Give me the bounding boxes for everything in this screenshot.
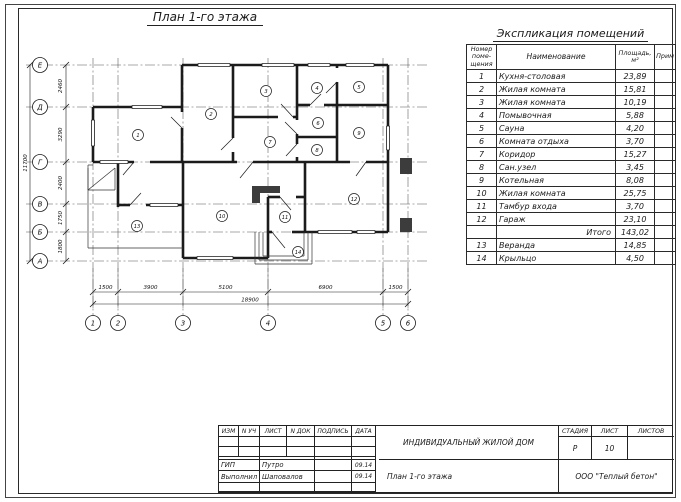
cell-room-number: 1: [467, 70, 497, 83]
cell-room-number: 8: [467, 161, 497, 174]
cell-note: [655, 148, 676, 161]
header-name: Наименование: [497, 45, 616, 70]
sheet-name: План 1-го этажа: [379, 460, 558, 492]
cell-room-number: 14: [467, 252, 497, 265]
revision-empty-cell: [219, 483, 260, 492]
svg-text:А: А: [37, 257, 43, 265]
svg-text:10: 10: [219, 214, 226, 220]
svg-text:Д: Д: [36, 103, 43, 111]
company-name: ООО "Теплый бетон": [559, 460, 674, 492]
revision-empty-cell: [260, 447, 287, 457]
cell-room-number: 3: [467, 96, 497, 109]
cell-room-area: 3,70: [616, 135, 655, 148]
cell-room-area: 4,20: [616, 122, 655, 135]
sign-name: Шаповалов: [260, 471, 315, 483]
svg-text:12: 12: [351, 197, 358, 203]
cell-room-area: 10,19: [616, 96, 655, 109]
stage-label: СТАДИЯ: [559, 426, 592, 437]
sign-date: 09.14: [352, 471, 376, 483]
svg-text:6900: 6900: [319, 285, 333, 291]
cell-room-name: Сан.узел: [497, 161, 616, 174]
cell-room-number: [467, 226, 497, 239]
header-note: Прим: [655, 45, 676, 70]
cell-note: [655, 109, 676, 122]
svg-text:6: 6: [406, 319, 411, 327]
cell-room-area: 25,75: [616, 187, 655, 200]
svg-text:3900: 3900: [144, 285, 158, 291]
svg-text:1750: 1750: [58, 211, 64, 225]
svg-text:В: В: [38, 200, 43, 208]
explication: Экспликация помещений Номер поме- щения …: [466, 22, 675, 265]
list-label: ЛИСТ: [592, 426, 628, 437]
cell-room-number: 9: [467, 174, 497, 187]
revision-empty-cell: [287, 437, 315, 447]
cell-room-name: Помывочная: [497, 109, 616, 122]
revision-empty-cell: [352, 447, 376, 457]
title-block-middle: ИНДИВИДУАЛЬНЫЙ ЖИЛОЙ ДОМ План 1-го этажа: [379, 426, 559, 492]
svg-text:11700: 11700: [23, 154, 29, 172]
revision-header: N ДОК: [287, 426, 315, 437]
cell-room-area: 8,08: [616, 174, 655, 187]
revision-empty-cell: [260, 483, 315, 492]
svg-text:4: 4: [266, 319, 270, 327]
explication-row: 13Веранда14,85: [467, 239, 676, 252]
cell-room-name: Тамбур входа: [497, 200, 616, 213]
cell-room-area: 143,02: [616, 226, 655, 239]
sign-role: ГИП: [219, 460, 260, 471]
explication-row: 6Комната отдыха3,70: [467, 135, 676, 148]
cell-note: [655, 213, 676, 226]
cell-room-number: 11: [467, 200, 497, 213]
svg-text:13: 13: [134, 224, 141, 230]
svg-text:1: 1: [136, 133, 139, 139]
svg-text:1500: 1500: [99, 285, 113, 291]
explication-row: 11Тамбур входа3,70: [467, 200, 676, 213]
cell-room-area: 4,50: [616, 252, 655, 265]
svg-text:9: 9: [357, 131, 360, 137]
cell-room-name: Котельная: [497, 174, 616, 187]
cell-room-number: 10: [467, 187, 497, 200]
svg-text:14: 14: [295, 250, 302, 256]
svg-text:3: 3: [181, 319, 185, 327]
explication-row: 5Сауна4,20: [467, 122, 676, 135]
explication-total-row: Итого143,02: [467, 226, 676, 239]
revision-header: ПОДПИСЬ: [315, 426, 352, 437]
cell-note: [655, 83, 676, 96]
revision-empty-cell: [219, 437, 239, 447]
drawing-sheet: План 1-го этажа ЕДГВБА123456246032902400…: [0, 0, 681, 502]
cell-room-number: 4: [467, 109, 497, 122]
sign-signature: [315, 460, 352, 471]
cell-room-name: Комната отдыха: [497, 135, 616, 148]
cell-note: [655, 187, 676, 200]
revision-header: N УЧ: [239, 426, 260, 437]
svg-text:2: 2: [209, 112, 212, 118]
cell-room-name: Веранда: [497, 239, 616, 252]
svg-text:2400: 2400: [58, 176, 64, 190]
cell-room-area: 23,89: [616, 70, 655, 83]
revision-empty-cell: [260, 437, 287, 447]
cell-room-area: 3,70: [616, 200, 655, 213]
cell-note: [655, 96, 676, 109]
revision-empty-cell: [352, 437, 376, 447]
revision-empty-cell: [352, 483, 376, 492]
cell-room-name: Жилая комната: [497, 83, 616, 96]
cell-note: [655, 135, 676, 148]
revision-empty-cell: [239, 447, 260, 457]
svg-text:5100: 5100: [219, 285, 233, 291]
cell-room-area: 15,27: [616, 148, 655, 161]
explication-title: Экспликация помещений: [466, 22, 675, 41]
cell-room-area: 5,88: [616, 109, 655, 122]
cell-room-number: 13: [467, 239, 497, 252]
svg-text:4: 4: [315, 86, 318, 92]
cell-room-name: Гараж: [497, 213, 616, 226]
cell-room-area: 23,10: [616, 213, 655, 226]
revision-header: ДАТА: [352, 426, 376, 437]
listov-value: [628, 437, 674, 460]
title-block-revisions: ИЗМN УЧЛИСТN ДОКПОДПИСЬДАТАГИППутро09.14…: [219, 426, 379, 492]
explication-row: 10Жилая комната25,75: [467, 187, 676, 200]
svg-text:5: 5: [381, 319, 386, 327]
revision-empty-cell: [315, 437, 352, 447]
cell-room-number: 7: [467, 148, 497, 161]
explication-row: 3Жилая комната10,19: [467, 96, 676, 109]
title-block: ИЗМN УЧЛИСТN ДОКПОДПИСЬДАТАГИППутро09.14…: [218, 425, 673, 493]
cell-note: [655, 226, 676, 239]
cell-room-name: Сауна: [497, 122, 616, 135]
revision-empty-cell: [219, 447, 239, 457]
explication-row: 8Сан.узел3,45: [467, 161, 676, 174]
svg-text:Б: Б: [38, 228, 43, 236]
svg-text:1: 1: [91, 319, 95, 327]
svg-text:1500: 1500: [389, 285, 403, 291]
cell-note: [655, 252, 676, 265]
floor-plan-svg: ЕДГВБА1234562460329024001750180011700150…: [0, 0, 460, 345]
sign-role: Выполнил: [219, 471, 260, 483]
cell-note: [655, 239, 676, 252]
title-block-right: СТАДИЯ ЛИСТ ЛИСТОВ Р 10 ООО "Теплый бето…: [559, 426, 674, 492]
cell-room-area: 15,81: [616, 83, 655, 96]
revision-header: ЛИСТ: [260, 426, 287, 437]
header-room-number: Номер поме- щения: [467, 45, 497, 70]
svg-text:1800: 1800: [58, 239, 64, 253]
cell-room-number: 6: [467, 135, 497, 148]
cell-room-number: 12: [467, 213, 497, 226]
listov-label: ЛИСТОВ: [628, 426, 674, 437]
svg-text:3: 3: [264, 89, 267, 95]
explication-table: Номер поме- щения Наименование Площадь, …: [466, 44, 676, 265]
svg-text:11: 11: [282, 215, 289, 221]
cell-room-name: Жилая комната: [497, 187, 616, 200]
explication-row: 7Коридор15,27: [467, 148, 676, 161]
sign-name: Путро: [260, 460, 315, 471]
revision-empty-cell: [239, 437, 260, 447]
project-name: ИНДИВИДУАЛЬНЫЙ ЖИЛОЙ ДОМ: [379, 426, 558, 460]
sign-signature: [315, 471, 352, 483]
svg-text:Е: Е: [38, 61, 43, 69]
header-area: Площадь, м²: [616, 45, 655, 70]
cell-note: [655, 174, 676, 187]
cell-room-number: 5: [467, 122, 497, 135]
cell-note: [655, 161, 676, 174]
explication-row: 4Помывочная5,88: [467, 109, 676, 122]
explication-row: 12Гараж23,10: [467, 213, 676, 226]
cell-room-area: 3,45: [616, 161, 655, 174]
explication-row: 2Жилая комната15,81: [467, 83, 676, 96]
explication-row: 14Крыльцо4,50: [467, 252, 676, 265]
revision-empty-cell: [287, 447, 315, 457]
explication-row: 9Котельная8,08: [467, 174, 676, 187]
explication-body: 1Кухня-столовая23,892Жилая комната15,813…: [467, 70, 676, 265]
cell-room-number: 2: [467, 83, 497, 96]
cell-room-name: Коридор: [497, 148, 616, 161]
cell-room-name: Жилая комната: [497, 96, 616, 109]
revision-empty-cell: [315, 447, 352, 457]
cell-room-area: 14,85: [616, 239, 655, 252]
svg-text:2460: 2460: [58, 79, 64, 93]
sign-date: 09.14: [352, 460, 376, 471]
revision-empty-cell: [315, 483, 352, 492]
explication-row: 1Кухня-столовая23,89: [467, 70, 676, 83]
cell-note: [655, 200, 676, 213]
svg-text:18900: 18900: [241, 298, 259, 304]
cell-room-name: Крыльцо: [497, 252, 616, 265]
svg-text:2: 2: [116, 319, 121, 327]
cell-total-label: Итого: [497, 226, 616, 239]
explication-header-row: Номер поме- щения Наименование Площадь, …: [467, 45, 676, 70]
revision-header: ИЗМ: [219, 426, 239, 437]
cell-note: [655, 70, 676, 83]
stage-value: Р: [559, 437, 592, 460]
list-value: 10: [592, 437, 628, 460]
svg-text:3290: 3290: [58, 127, 64, 141]
cell-note: [655, 122, 676, 135]
cell-room-name: Кухня-столовая: [497, 70, 616, 83]
